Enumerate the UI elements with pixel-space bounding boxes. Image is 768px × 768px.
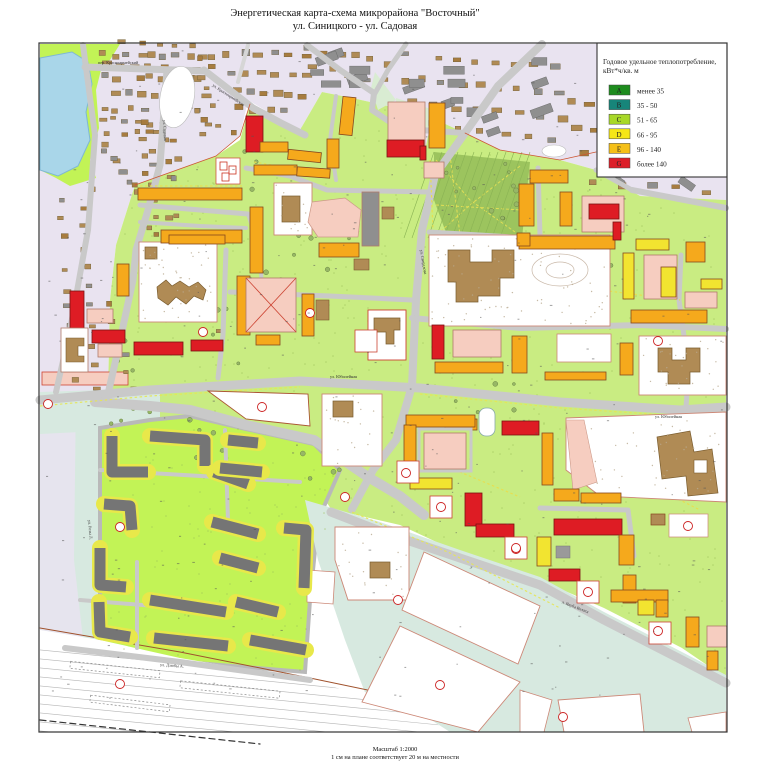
- svg-text:C: C: [617, 116, 622, 124]
- svg-text:кВт*ч/кв. м: кВт*ч/кв. м: [603, 67, 639, 75]
- svg-text:35 - 50: 35 - 50: [637, 102, 658, 110]
- svg-text:ул. Юбилейная: ул. Юбилейная: [655, 414, 682, 419]
- svg-text:менее 35: менее 35: [637, 88, 664, 96]
- svg-text:пер. Красноармейский: пер. Красноармейский: [98, 60, 139, 65]
- svg-text:66 - 95: 66 - 95: [637, 131, 658, 139]
- svg-text:Годовое удельное теплопотребле: Годовое удельное теплопотребление,: [603, 58, 716, 66]
- svg-text:B: B: [617, 102, 622, 110]
- svg-text:более 140: более 140: [637, 161, 667, 169]
- svg-text:E: E: [617, 145, 621, 153]
- svg-text:96 - 140: 96 - 140: [637, 146, 661, 154]
- svg-text:51 - 65: 51 - 65: [637, 117, 658, 125]
- svg-text:A: A: [616, 87, 621, 95]
- svg-text:D: D: [616, 131, 621, 139]
- svg-text:G: G: [616, 160, 621, 168]
- svg-text:ул. Юбилейная: ул. Юбилейная: [330, 374, 357, 379]
